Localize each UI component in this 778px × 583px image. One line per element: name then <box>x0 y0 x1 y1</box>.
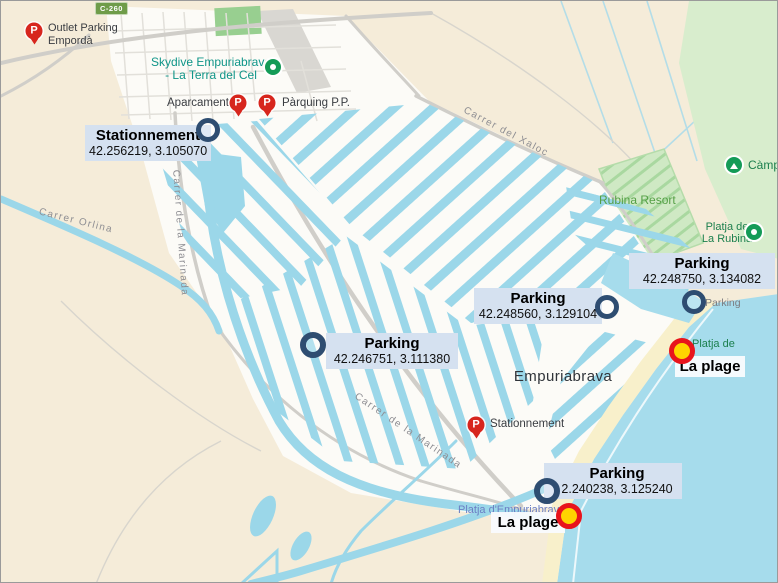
p-glyph: P <box>472 419 479 431</box>
beach-marker-south <box>556 503 582 529</box>
poi-label-aparcament: Aparcament <box>167 97 229 110</box>
town-label-empuriabrava: Empuriabrava <box>504 368 622 385</box>
annotation-parking-west: Parking 42.246751, 3.111380 <box>326 333 458 369</box>
beach-marker-northeast <box>669 338 695 364</box>
parking-poi-marker-outlet[interactable]: P <box>26 23 43 40</box>
annotation-title: La plage <box>495 514 561 531</box>
annotation-la-plage-s: La plage <box>491 512 565 533</box>
p-glyph: P <box>234 97 241 109</box>
annotation-title: Stationnement <box>89 127 207 144</box>
annotation-parking-northeast: Parking 42.248750, 3.134082 <box>629 253 775 289</box>
poi-label-camping: Càmping <box>748 159 778 171</box>
annotation-coords: 42.248750, 3.134082 <box>633 272 771 287</box>
annotation-coords: 42.256219, 3.105070 <box>89 144 207 159</box>
annotation-parking-south: Parking 2.240238, 3.125240 <box>544 463 682 499</box>
annotation-title: Parking <box>330 335 454 352</box>
poi-label-parquing-pp: Pàrquing P.P. <box>282 97 350 110</box>
parking-ring-marker-south <box>534 478 560 504</box>
outlet-parking-line1: Outlet Parking <box>48 22 118 35</box>
annotation-coords: 2.240238, 3.125240 <box>556 482 678 497</box>
parking-poi-marker-aparcament[interactable]: P <box>230 95 247 112</box>
annotation-coords: 42.246751, 3.111380 <box>330 352 454 367</box>
p-glyph: P <box>263 97 270 109</box>
annotation-coords: 42.248560, 3.129104 <box>478 307 598 322</box>
annotation-title: Parking <box>633 255 771 272</box>
poi-label-skydive: Skydive Empuriabrava - La Terra del Cel <box>146 56 276 82</box>
poi-label-outlet-parking: Outlet Parking Empordà <box>48 22 118 48</box>
annotation-title: Parking <box>478 290 598 307</box>
beach-icon[interactable] <box>746 224 762 240</box>
skydive-icon[interactable] <box>265 59 281 75</box>
p-glyph: P <box>30 25 37 37</box>
parking-ring-marker-west <box>300 332 326 358</box>
parking-ring-marker-stationnement <box>196 118 220 142</box>
skydive-line2: - La Terra del Cel <box>146 69 276 82</box>
annotation-stationnement: Stationnement 42.256219, 3.105070 <box>85 125 211 161</box>
poi-label-stationnement: Stationnement <box>490 418 564 431</box>
annotation-title: Parking <box>556 465 678 482</box>
parking-poi-marker-parquing[interactable]: P <box>259 95 276 112</box>
map-screenshot: C-260 Outlet Parking Empordà Skydive Emp… <box>0 0 778 583</box>
beach-label-platja-de: Platja de <box>692 338 735 350</box>
road-badge-c260: C-260 <box>95 2 128 15</box>
sports-field <box>214 6 261 36</box>
parking-poi-marker-stationnement[interactable]: P <box>468 417 485 434</box>
area-label-rubina-resort: Rubina Resort <box>599 193 676 207</box>
poi-label-parking-small: Parking <box>705 297 741 309</box>
parking-ring-marker-northeast <box>682 290 706 314</box>
annotation-parking-center: Parking 42.248560, 3.129104 <box>474 288 602 324</box>
outlet-parking-line2: Empordà <box>48 35 118 48</box>
camping-icon[interactable] <box>726 157 742 173</box>
parking-ring-marker-center <box>595 295 619 319</box>
